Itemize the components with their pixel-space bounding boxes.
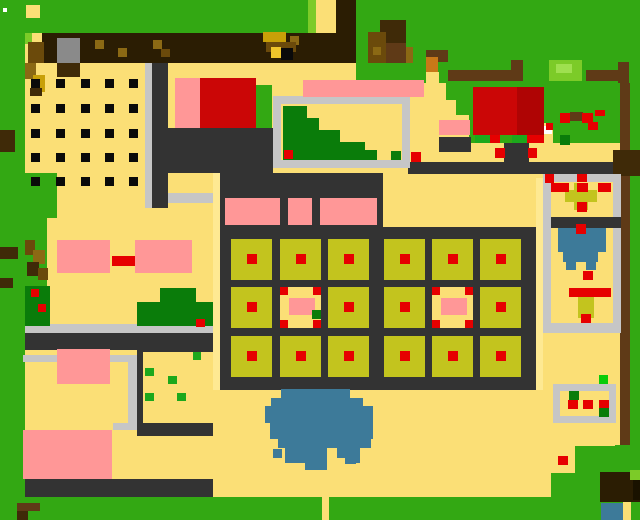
fence-5 xyxy=(618,62,629,83)
dig-spot-r3-c3[interactable] xyxy=(105,153,114,162)
canopy-eye-dark xyxy=(281,48,293,60)
small-pen-bottom xyxy=(553,416,616,423)
bush-left-berry-1[interactable] xyxy=(31,289,39,297)
tree-top-speck xyxy=(373,47,381,55)
grass-right-column xyxy=(630,83,640,473)
item-pen-right xyxy=(613,174,621,333)
house-1[interactable] xyxy=(57,240,110,273)
small-pond-2[interactable] xyxy=(563,252,598,262)
grass-right-low xyxy=(615,445,640,473)
dig-spot-r1-c3[interactable] xyxy=(105,104,114,113)
tree-branch-1 xyxy=(0,247,18,259)
grass-left-column xyxy=(0,0,25,520)
dig-spot-r4-c0[interactable] xyxy=(31,177,40,186)
small-pond-3[interactable] xyxy=(566,262,576,270)
seed-1[interactable] xyxy=(145,368,154,376)
dig-spot-r3-c2[interactable] xyxy=(81,153,90,162)
building-red-right-a[interactable] xyxy=(473,87,517,135)
house-red-bar xyxy=(112,256,135,266)
crop-dot-r2-c2[interactable] xyxy=(344,351,354,361)
crop-dot-r1-c2[interactable] xyxy=(344,302,354,312)
pond-5[interactable] xyxy=(278,439,371,448)
pink-patch xyxy=(439,120,470,135)
bush-mid-a xyxy=(160,288,196,302)
seed-5[interactable] xyxy=(193,352,201,360)
seed-pen-top xyxy=(137,346,213,352)
berry-4[interactable] xyxy=(595,110,605,116)
tree-top-branch xyxy=(386,43,406,63)
dig-spot-r1-c1[interactable] xyxy=(56,104,65,113)
dig-spot-r0-c2[interactable] xyxy=(81,79,90,88)
crop-dot-r2-c4[interactable] xyxy=(448,351,458,361)
grass-bottom xyxy=(0,497,640,520)
special-plot-corner-2[interactable] xyxy=(280,320,288,328)
crop-dot-r2-c3[interactable] xyxy=(400,351,410,361)
gray-corner xyxy=(168,193,213,203)
dig-spot-r4-c3[interactable] xyxy=(105,177,114,186)
pond-3[interactable] xyxy=(265,406,373,423)
brown-block-right xyxy=(613,150,640,176)
marker-b xyxy=(17,511,28,520)
canopy-eye xyxy=(271,47,281,58)
greenhouse-border-top xyxy=(273,96,410,104)
crop-dot-r0-c3[interactable] xyxy=(400,254,410,264)
small-pen-top xyxy=(553,384,616,391)
small-pen-green-2[interactable] xyxy=(599,408,609,417)
white-speck xyxy=(3,8,7,12)
berry-1[interactable] xyxy=(560,113,570,123)
special-plot-corner-3[interactable] xyxy=(465,320,473,328)
under-building-red-1[interactable] xyxy=(490,135,500,143)
crop-dot-r2-c5[interactable] xyxy=(496,351,506,361)
small-pond-red-bottom[interactable] xyxy=(583,271,593,280)
pond-11[interactable] xyxy=(345,456,356,464)
sand-right-1 xyxy=(544,143,620,162)
berry-3[interactable] xyxy=(588,122,598,130)
item-pen-bottom xyxy=(549,323,621,333)
pond-2[interactable] xyxy=(271,398,363,406)
canopy-under xyxy=(57,63,80,77)
special-plot-corner-1[interactable] xyxy=(465,287,473,295)
building-green-side xyxy=(256,85,272,128)
tree-trunk-4 xyxy=(38,268,48,280)
corner-blue xyxy=(601,503,623,520)
dark-patch-left xyxy=(0,130,15,152)
special-plot-corner-3[interactable] xyxy=(313,320,321,328)
road-block xyxy=(152,128,273,173)
berry-leaf xyxy=(560,135,570,145)
tree-canopy-upper xyxy=(25,173,57,218)
crop-dot-r1-c0[interactable] xyxy=(247,302,257,312)
item-bar-bottom[interactable] xyxy=(569,288,611,297)
canopy-speck-2 xyxy=(118,48,127,57)
fence-2 xyxy=(448,70,511,81)
hedge-4 xyxy=(340,142,365,160)
item-pen-left xyxy=(543,174,551,333)
pale-strip-left xyxy=(213,173,220,390)
dig-spot-r1-c0[interactable] xyxy=(31,104,40,113)
sand-below-block xyxy=(439,152,471,162)
house-3[interactable] xyxy=(57,349,110,384)
under-building-green-2[interactable] xyxy=(512,135,527,143)
hedge-2 xyxy=(307,118,319,160)
marker-a xyxy=(17,503,40,511)
door-top-left xyxy=(26,5,40,18)
under-building-dot-1[interactable] xyxy=(495,148,505,158)
dig-spot-r4-c1[interactable] xyxy=(56,177,65,186)
yard-wall-bottom xyxy=(113,423,137,430)
item-bar-top-1[interactable] xyxy=(551,183,569,192)
lone-red-dot[interactable] xyxy=(558,456,568,465)
bush-top-right-inner xyxy=(556,64,572,73)
seed-pen-bottom xyxy=(137,423,213,436)
crop-dot-r1-c3[interactable] xyxy=(400,302,410,312)
building-red-right-b[interactable] xyxy=(517,87,544,135)
sand-wedge-1 xyxy=(426,72,439,162)
canopy-speck-1 xyxy=(95,40,104,49)
corner-sand xyxy=(623,502,631,520)
crop-dot-r2-c1[interactable] xyxy=(296,351,306,361)
red-dot-outside-pen[interactable] xyxy=(411,152,421,162)
charcoal-block-1 xyxy=(439,137,471,152)
bush-left-berry-2[interactable] xyxy=(38,304,46,312)
plaza-sign-1[interactable] xyxy=(225,198,280,225)
crop-dot-r0-c0[interactable] xyxy=(247,254,257,264)
hedge-red-dot[interactable] xyxy=(284,150,293,159)
canopy-strip xyxy=(42,33,356,63)
small-pen-green-1[interactable] xyxy=(569,391,579,400)
pond-6[interactable] xyxy=(285,448,305,463)
fence-3 xyxy=(511,60,523,81)
under-building-red-2[interactable] xyxy=(527,135,544,143)
under-building-dot-2[interactable] xyxy=(528,148,537,158)
under-building-green-1[interactable] xyxy=(475,135,490,143)
road-gray-edge xyxy=(145,63,152,208)
corner-light-green xyxy=(630,470,640,480)
item-bar-top-3[interactable] xyxy=(598,183,611,192)
item-dot-tl[interactable] xyxy=(545,174,554,183)
hedge-green-dot[interactable] xyxy=(391,151,401,160)
dig-spot-r0-c3[interactable] xyxy=(105,79,114,88)
item-dot-bottom[interactable] xyxy=(581,314,591,323)
special-plot-corner-1[interactable] xyxy=(313,287,321,295)
dig-spot-r3-c0[interactable] xyxy=(31,153,40,162)
item-dot-top[interactable] xyxy=(577,174,587,182)
pale-strip-right xyxy=(536,178,543,390)
dig-spot-r0-c1[interactable] xyxy=(56,79,65,88)
dig-spot-r4-c4[interactable] xyxy=(129,177,138,186)
path-bottom xyxy=(322,497,329,520)
small-pen-red-1[interactable] xyxy=(568,400,578,409)
dig-spot-r4-c2[interactable] xyxy=(81,177,90,186)
house-2[interactable] xyxy=(135,240,192,273)
plaza-sign-3[interactable] xyxy=(320,198,377,225)
gray-object[interactable] xyxy=(57,38,80,63)
grass-bottom-right-2 xyxy=(551,473,575,520)
tree-top-speck-2 xyxy=(406,47,413,63)
fence-orange-post xyxy=(426,57,438,72)
fence-right xyxy=(620,83,630,445)
canopy-gold-bar xyxy=(263,32,286,42)
item-bar-top-2[interactable] xyxy=(577,183,588,192)
pond-4[interactable] xyxy=(270,423,373,439)
special-plot-corner-0[interactable] xyxy=(432,287,440,295)
dig-spot-r1-c4[interactable] xyxy=(129,104,138,113)
trunk-d xyxy=(30,88,42,96)
greenhouse-border-bottom xyxy=(273,160,410,168)
crop-dot-r0-c5[interactable] xyxy=(496,254,506,264)
seed-4[interactable] xyxy=(177,393,186,401)
dig-spot-r3-c1[interactable] xyxy=(56,153,65,162)
dig-spot-r2-c0[interactable] xyxy=(31,129,40,138)
fence-4 xyxy=(586,70,618,81)
special-plot-corner-0[interactable] xyxy=(280,287,288,295)
crop-dot-r0-c2[interactable] xyxy=(344,254,354,264)
tree-branch-2 xyxy=(0,278,13,288)
trunk-a xyxy=(28,42,44,63)
crop-dot-r2-c0[interactable] xyxy=(247,351,257,361)
canopy-speck-3 xyxy=(153,40,162,49)
dig-spot-r3-c4[interactable] xyxy=(129,153,138,162)
hedge-5 xyxy=(365,150,377,160)
small-pond-red-top[interactable] xyxy=(576,224,586,234)
building-red-top[interactable] xyxy=(200,78,256,128)
crop-dot-r0-c1[interactable] xyxy=(296,254,306,264)
building-pink-left[interactable] xyxy=(175,78,200,128)
dig-spot-r2-c2[interactable] xyxy=(81,129,90,138)
pond-1[interactable] xyxy=(281,389,350,398)
charcoal-block-2 xyxy=(504,143,529,163)
path-light-edge xyxy=(308,0,316,33)
special-plot-pink[interactable] xyxy=(441,298,467,315)
item-dot-below-cross[interactable] xyxy=(577,202,587,212)
special-plot-green-dot[interactable] xyxy=(312,310,321,319)
canopy-speck-4 xyxy=(161,49,170,57)
greenhouse-border-left xyxy=(273,96,281,168)
dig-spot-r2-c3[interactable] xyxy=(105,129,114,138)
berry-5[interactable] xyxy=(546,123,553,130)
hedge-3 xyxy=(319,130,340,160)
road-band xyxy=(408,162,613,174)
road-bottom xyxy=(25,479,213,497)
special-plot-corner-2[interactable] xyxy=(432,320,440,328)
bright-green-dot[interactable] xyxy=(599,375,608,384)
item-pen-bar xyxy=(551,217,621,228)
seed-pen-left xyxy=(137,352,143,423)
canopy-block xyxy=(336,0,356,63)
pond-7[interactable] xyxy=(305,448,327,470)
bush-mid-berry[interactable] xyxy=(196,319,205,327)
crop-dot-r1-c5[interactable] xyxy=(496,302,506,312)
seed-2[interactable] xyxy=(168,376,177,384)
dig-spot-r2-c1[interactable] xyxy=(56,129,65,138)
seed-3[interactable] xyxy=(145,393,154,401)
grass-top-left xyxy=(0,0,316,33)
sign-strip xyxy=(303,80,424,97)
dig-spot-r1-c2[interactable] xyxy=(81,104,90,113)
dig-spot-r2-c4[interactable] xyxy=(129,129,138,138)
pond-10[interactable] xyxy=(273,449,282,458)
game-map xyxy=(0,0,640,520)
small-pen-red-2[interactable] xyxy=(583,400,593,409)
small-pond-4[interactable] xyxy=(586,262,596,270)
corner-darkest xyxy=(633,478,640,500)
greenhouse-border-right xyxy=(402,96,410,168)
dig-spot-r0-c4[interactable] xyxy=(129,79,138,88)
yard-wall-right xyxy=(128,355,137,430)
dig-spot-r0-c0[interactable] xyxy=(31,79,40,88)
plaza-sign-2[interactable] xyxy=(288,198,312,225)
house-4[interactable] xyxy=(23,430,112,479)
crop-dot-r0-c4[interactable] xyxy=(448,254,458,264)
yard-wall-a xyxy=(23,355,57,362)
